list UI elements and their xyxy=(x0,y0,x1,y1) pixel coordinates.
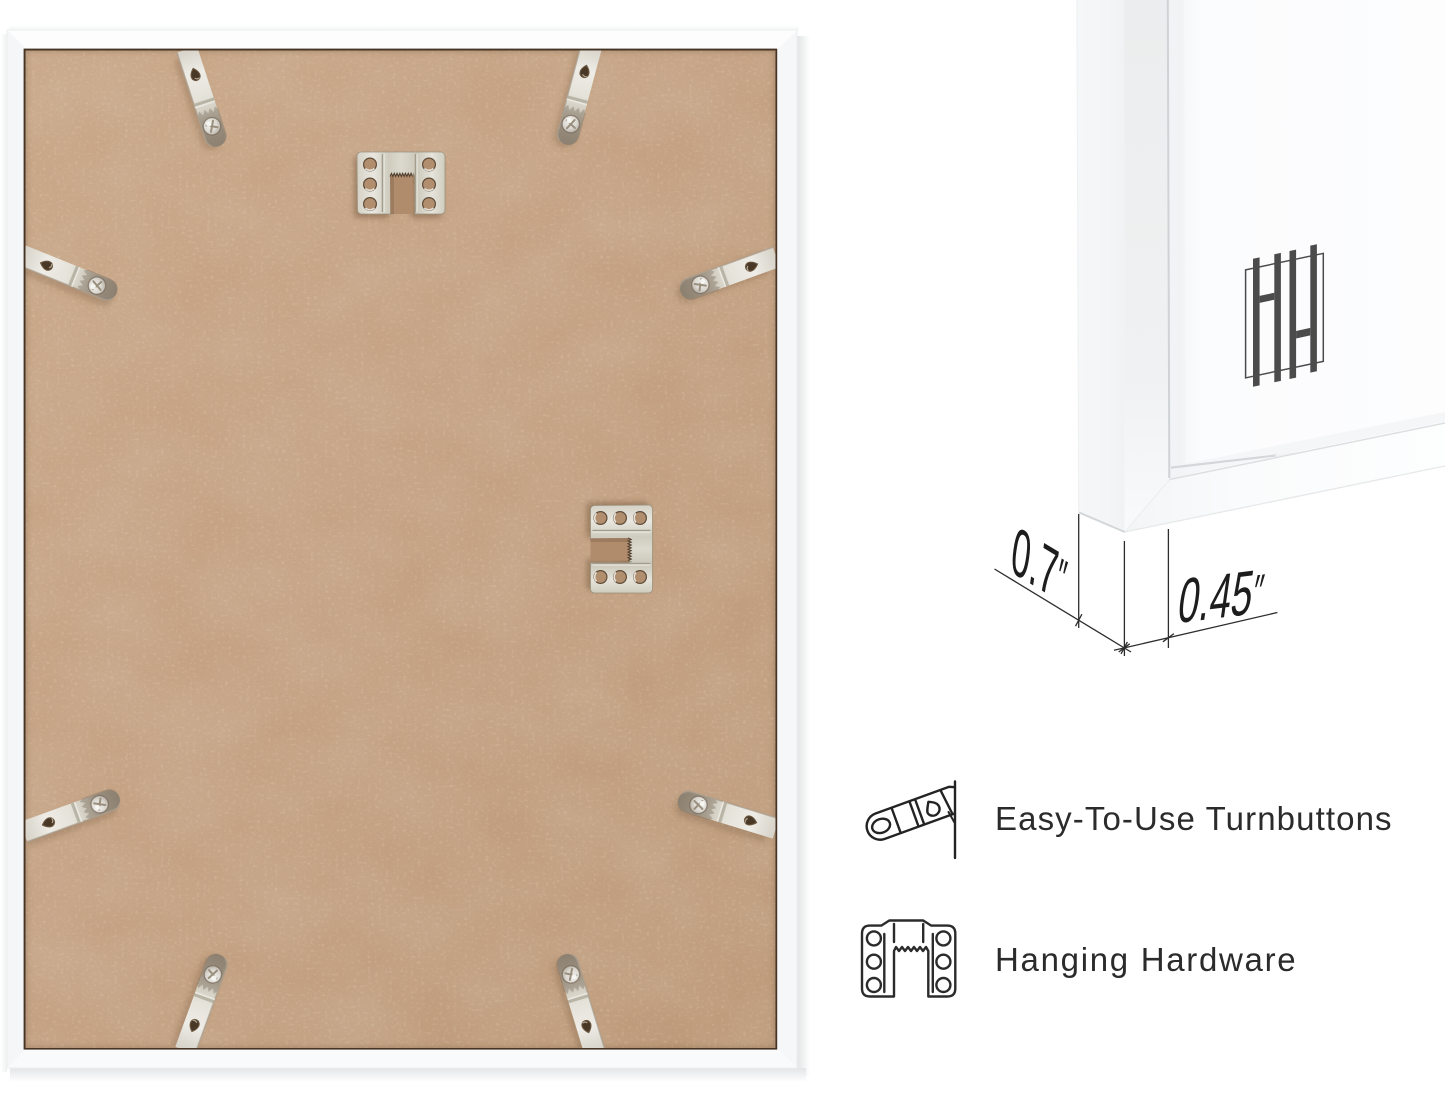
svg-text:Hanging Hardware: Hanging Hardware xyxy=(995,941,1297,978)
svg-text:Easy-To-Use Turnbuttons: Easy-To-Use Turnbuttons xyxy=(995,800,1393,837)
